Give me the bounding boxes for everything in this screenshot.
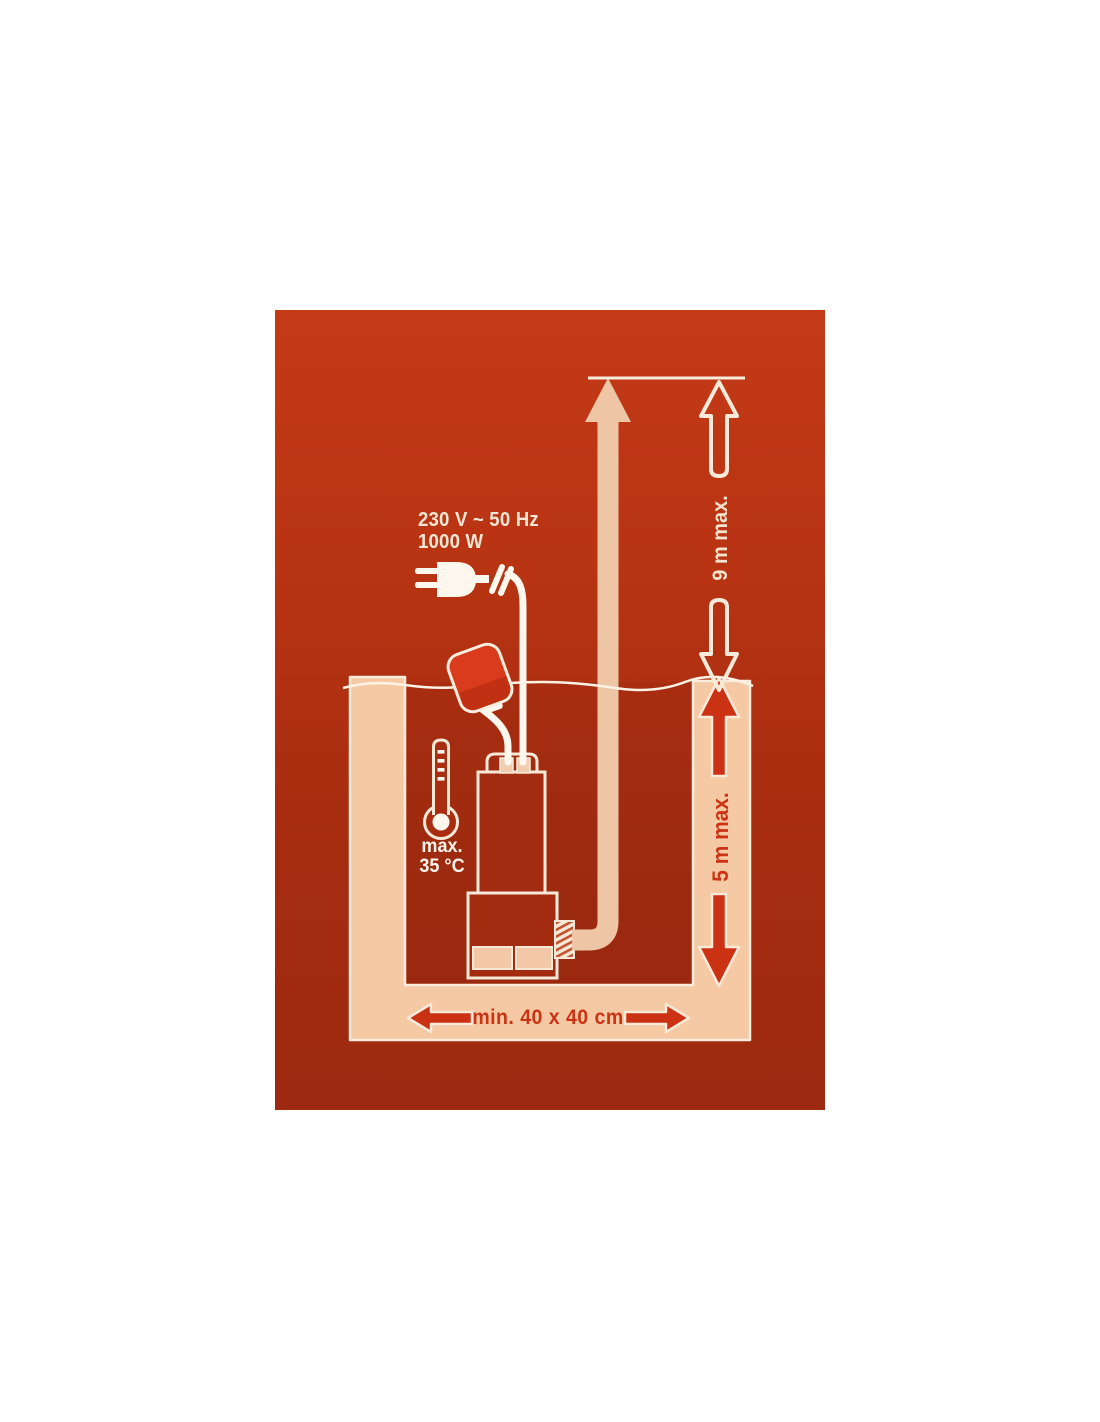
- max-temperature-line1: max.: [398, 837, 485, 857]
- outlet-fitting: [555, 921, 574, 958]
- power-spec-label: 230 V ~ 50 Hz 1000 W: [418, 509, 539, 553]
- diagram-canvas: 230 V ~ 50 Hz 1000 W max. 35 °C 9 m max.…: [275, 310, 825, 1110]
- delivery-head-label: 9 m max.: [709, 495, 733, 580]
- max-temperature-line2: 35 °C: [398, 857, 485, 877]
- power-spec-line1: 230 V ~ 50 Hz: [418, 509, 539, 531]
- power-plug-icon: [415, 562, 511, 597]
- pump-body: [478, 772, 545, 893]
- diagram-artwork: [275, 310, 825, 1110]
- immersion-depth-label: 5 m max.: [708, 792, 734, 881]
- pit-size-label: min. 40 x 40 cm: [472, 1006, 623, 1030]
- intake-slot-left: [473, 947, 512, 969]
- power-spec-line2: 1000 W: [418, 531, 539, 553]
- intake-slot-right: [516, 947, 552, 969]
- max-temperature-label: max. 35 °C: [398, 837, 485, 877]
- page: 230 V ~ 50 Hz 1000 W max. 35 °C 9 m max.…: [0, 0, 1100, 1422]
- up-arrow-outline: [701, 382, 737, 476]
